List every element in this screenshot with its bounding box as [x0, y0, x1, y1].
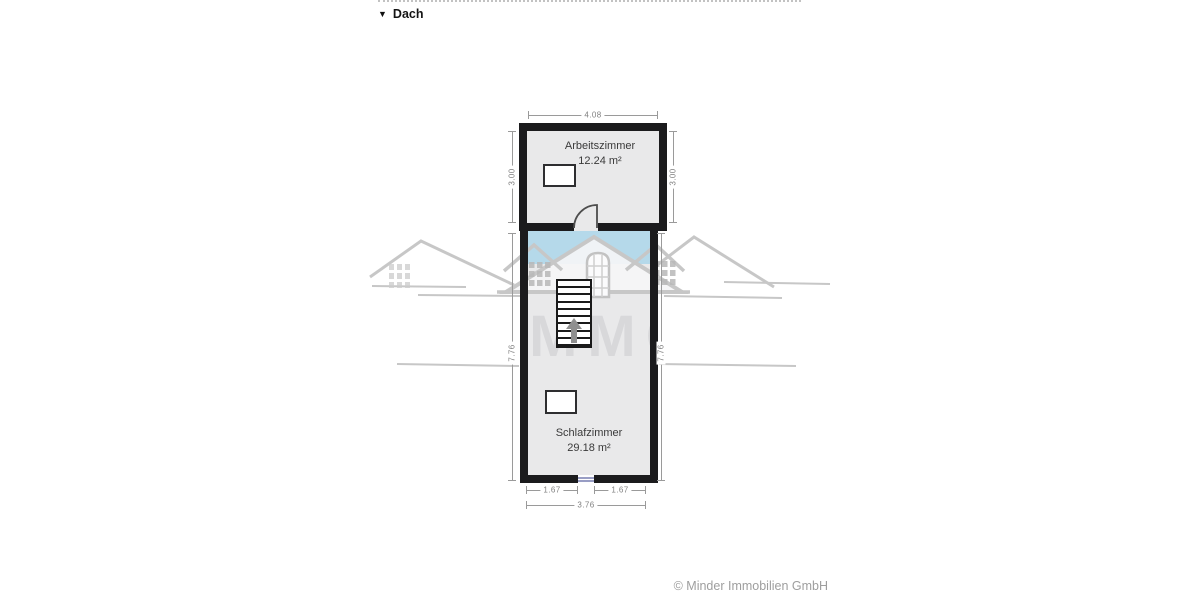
stairs	[556, 279, 592, 348]
room-area: 12.24 m²	[565, 154, 635, 169]
watermark-window-grid-farleft	[389, 264, 410, 288]
wall-lower-bottom-right	[594, 475, 658, 483]
roof-window-schlafzimmer	[545, 390, 577, 414]
copyright-credit: © Minder Immobilien GmbH	[674, 579, 828, 593]
bottom-wall-window	[578, 475, 594, 483]
wall-upper-top	[519, 123, 667, 131]
dim-bottom-total: 3.76	[574, 501, 597, 510]
room-name: Schlafzimmer	[556, 426, 623, 441]
dim-bottom-segment-right: 1.67	[608, 486, 631, 495]
dim-upper-width: 4.08	[581, 111, 604, 120]
wall-lower-bottom-left	[520, 475, 578, 483]
room-name: Arbeitszimmer	[565, 139, 635, 154]
wall-lower-left	[520, 231, 528, 475]
dim-upper-height-right: 3.00	[669, 165, 678, 188]
room-label-arbeitszimmer: Arbeitszimmer 12.24 m²	[565, 139, 635, 170]
room-label-schlafzimmer: Schlafzimmer 29.18 m²	[556, 426, 623, 457]
room-area: 29.18 m²	[556, 441, 623, 456]
dim-bottom-segment-left: 1.67	[540, 486, 563, 495]
watermark-window-grid-left	[529, 262, 551, 286]
wall-upper-bottom-right	[598, 223, 667, 231]
floor-name: Dach	[393, 7, 424, 21]
floor-section-toggle[interactable]: ▼ Dach	[378, 7, 424, 21]
dim-lower-height-right: 7.76	[657, 341, 666, 364]
wall-upper-right	[659, 131, 667, 223]
watermark-text: IMMO	[503, 304, 701, 369]
section-divider	[378, 0, 801, 2]
dim-upper-height-left: 3.00	[508, 165, 517, 188]
wall-upper-left	[519, 131, 527, 223]
dim-lower-height-left: 7.76	[508, 341, 517, 364]
collapse-triangle-icon: ▼	[378, 10, 387, 19]
door-swing	[560, 195, 605, 235]
